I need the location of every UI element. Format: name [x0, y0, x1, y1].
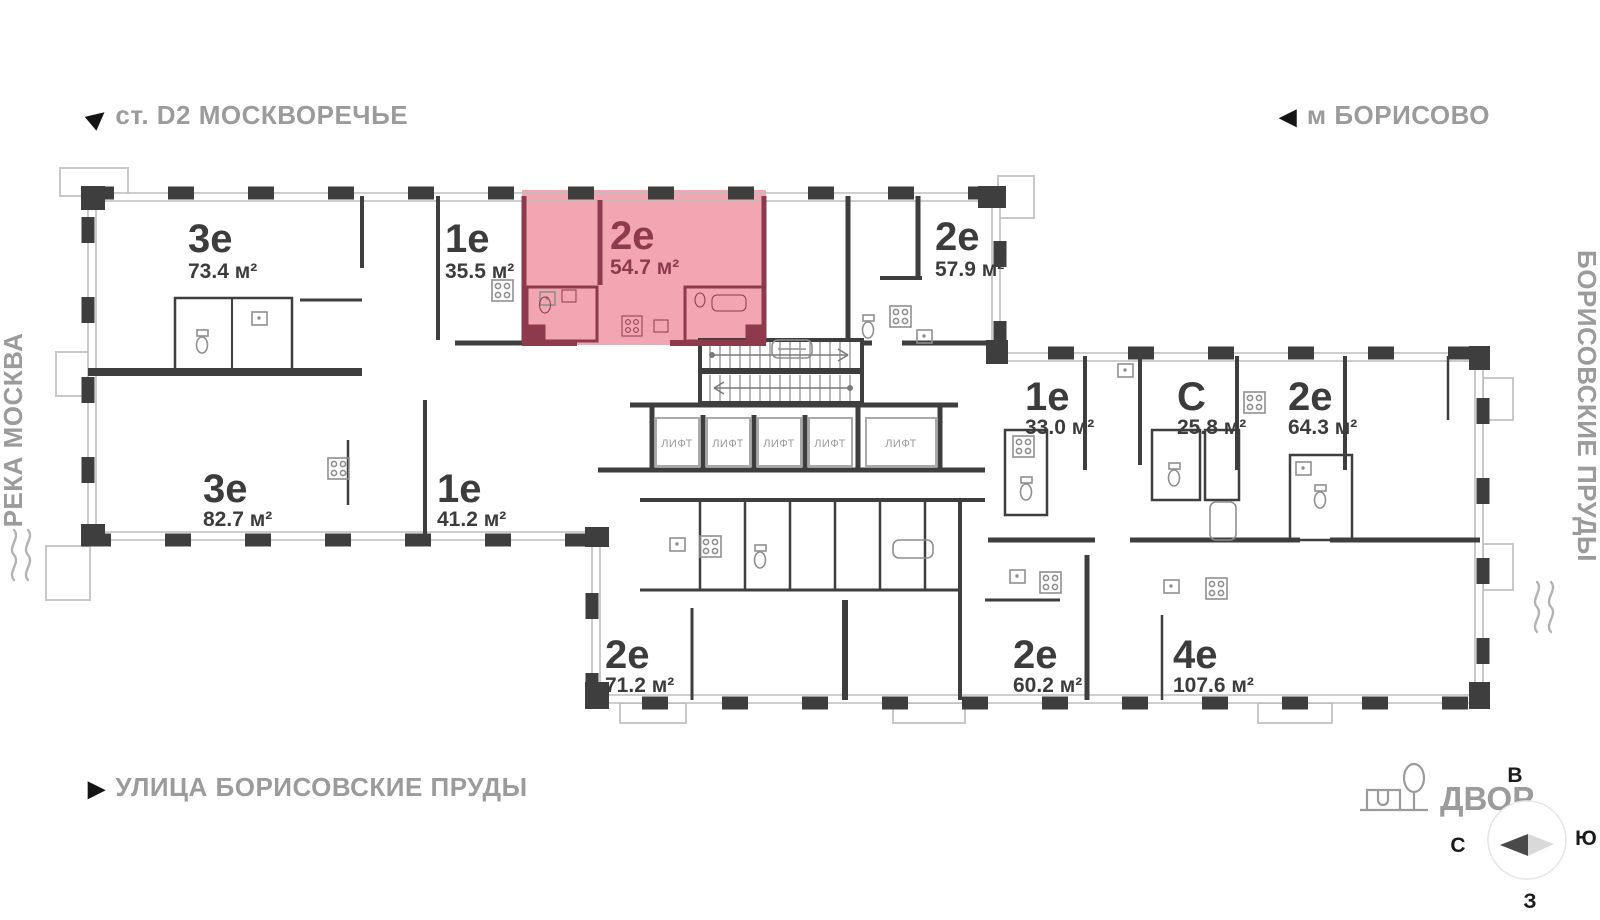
svg-text:1е: 1е	[445, 217, 490, 261]
svg-text:2е: 2е	[1288, 375, 1333, 419]
svg-text:57.9 м²: 57.9 м²	[935, 258, 1004, 281]
svg-text:41.2 м²: 41.2 м²	[437, 508, 506, 531]
svg-text:2е: 2е	[610, 214, 655, 258]
elevator-label: ЛИФТ	[661, 438, 693, 450]
svg-text:2е: 2е	[935, 215, 980, 259]
svg-text:2е: 2е	[605, 633, 650, 677]
elevator-label: ЛИФТ	[763, 438, 795, 450]
elevator-label: ЛИФТ	[712, 438, 744, 450]
compass-south: Ю	[1575, 827, 1597, 850]
elevator-label: ЛИФТ	[885, 438, 917, 450]
svg-text:107.6 м²: 107.6 м²	[1173, 674, 1254, 697]
compass-east: В	[1507, 764, 1522, 787]
svg-text:73.4 м²: 73.4 м²	[188, 260, 257, 283]
svg-text:С: С	[1177, 375, 1206, 419]
river-waves-icon	[12, 530, 30, 580]
svg-text:64.3 м²: 64.3 м²	[1288, 416, 1357, 439]
svg-text:60.2 м²: 60.2 м²	[1013, 674, 1082, 697]
svg-text:2е: 2е	[1013, 633, 1058, 677]
yard-icon	[1360, 764, 1428, 810]
floor-plan: ЛИФТ ЛИФТ ЛИФТ ЛИФТ ЛИФТ	[0, 0, 1600, 920]
elevators: ЛИФТ ЛИФТ ЛИФТ ЛИФТ ЛИФТ	[656, 418, 936, 466]
svg-text:54.7 м²: 54.7 м²	[610, 256, 679, 279]
svg-text:3е: 3е	[203, 467, 248, 511]
ponds-waves-icon	[1535, 582, 1553, 632]
svg-text:3е: 3е	[188, 217, 233, 261]
svg-text:82.7 м²: 82.7 м²	[203, 508, 272, 531]
svg-text:33.0 м²: 33.0 м²	[1025, 416, 1094, 439]
compass-north: С	[1450, 834, 1465, 857]
svg-text:25.8 м²: 25.8 м²	[1177, 416, 1246, 439]
elevator-label: ЛИФТ	[814, 438, 846, 450]
svg-text:71.2 м²: 71.2 м²	[605, 674, 674, 697]
svg-text:1е: 1е	[1025, 375, 1070, 419]
svg-text:4е: 4е	[1173, 633, 1218, 677]
compass-west: З	[1523, 890, 1536, 913]
svg-text:1е: 1е	[437, 467, 482, 511]
svg-text:35.5 м²: 35.5 м²	[445, 260, 514, 283]
